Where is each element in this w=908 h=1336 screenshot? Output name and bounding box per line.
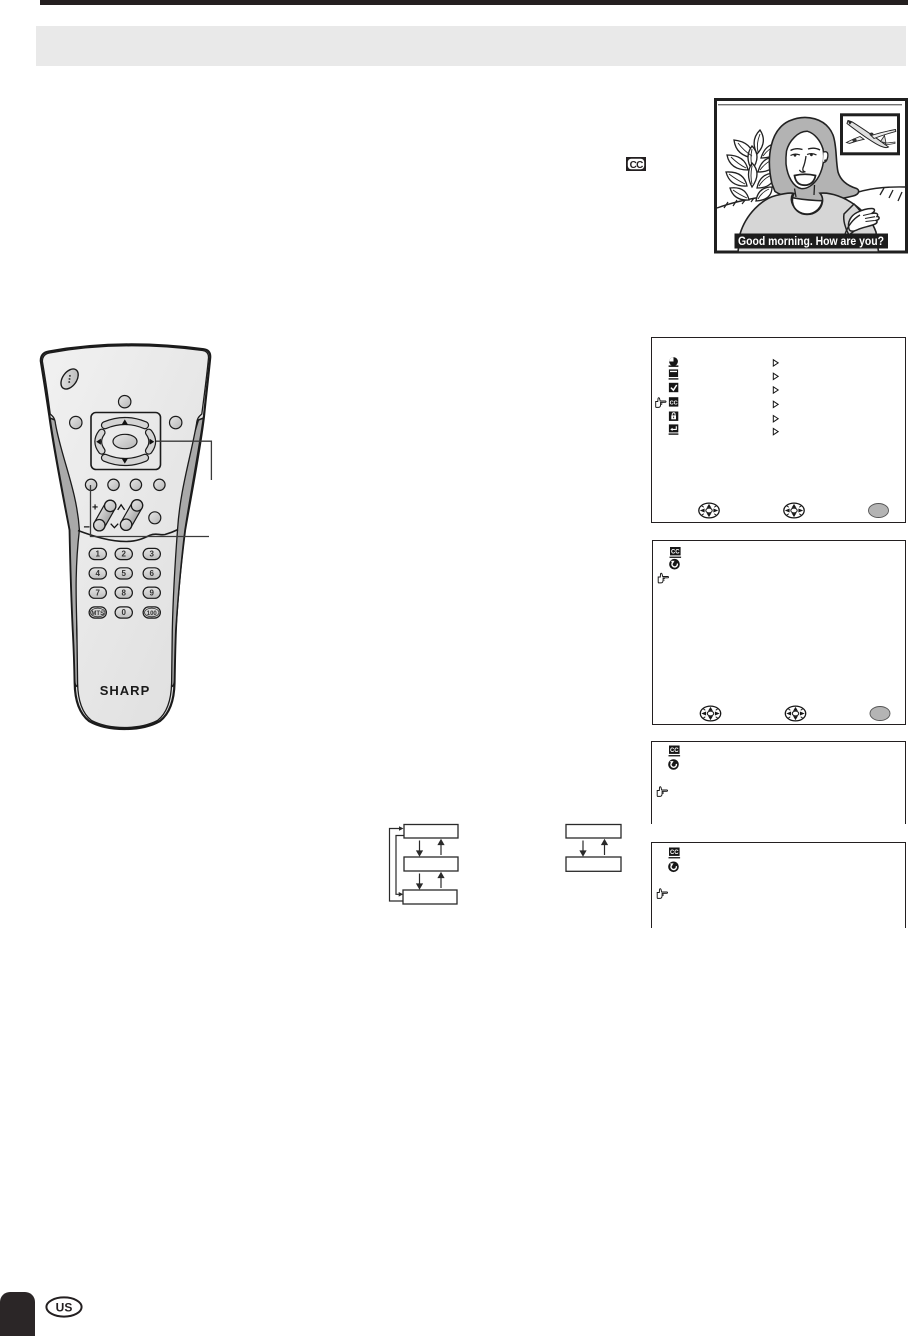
svg-text:6: 6 xyxy=(150,569,155,578)
svg-text:2: 2 xyxy=(122,550,127,559)
svg-text:5: 5 xyxy=(122,569,127,578)
svg-text:8: 8 xyxy=(122,588,127,597)
svg-text:9: 9 xyxy=(150,588,155,597)
svg-text:Good morning. How are you?: Good morning. How are you? xyxy=(738,236,884,248)
svg-text:CC: CC xyxy=(630,160,644,171)
svg-text:4: 4 xyxy=(96,569,101,578)
svg-text:CC: CC xyxy=(670,400,678,406)
svg-text:3: 3 xyxy=(150,550,155,559)
svg-text:1: 1 xyxy=(96,550,101,559)
svg-text:7: 7 xyxy=(96,588,101,597)
svg-text:0: 0 xyxy=(122,608,127,617)
svg-text:US: US xyxy=(56,1300,73,1314)
svg-text:SHARP: SHARP xyxy=(100,683,151,698)
